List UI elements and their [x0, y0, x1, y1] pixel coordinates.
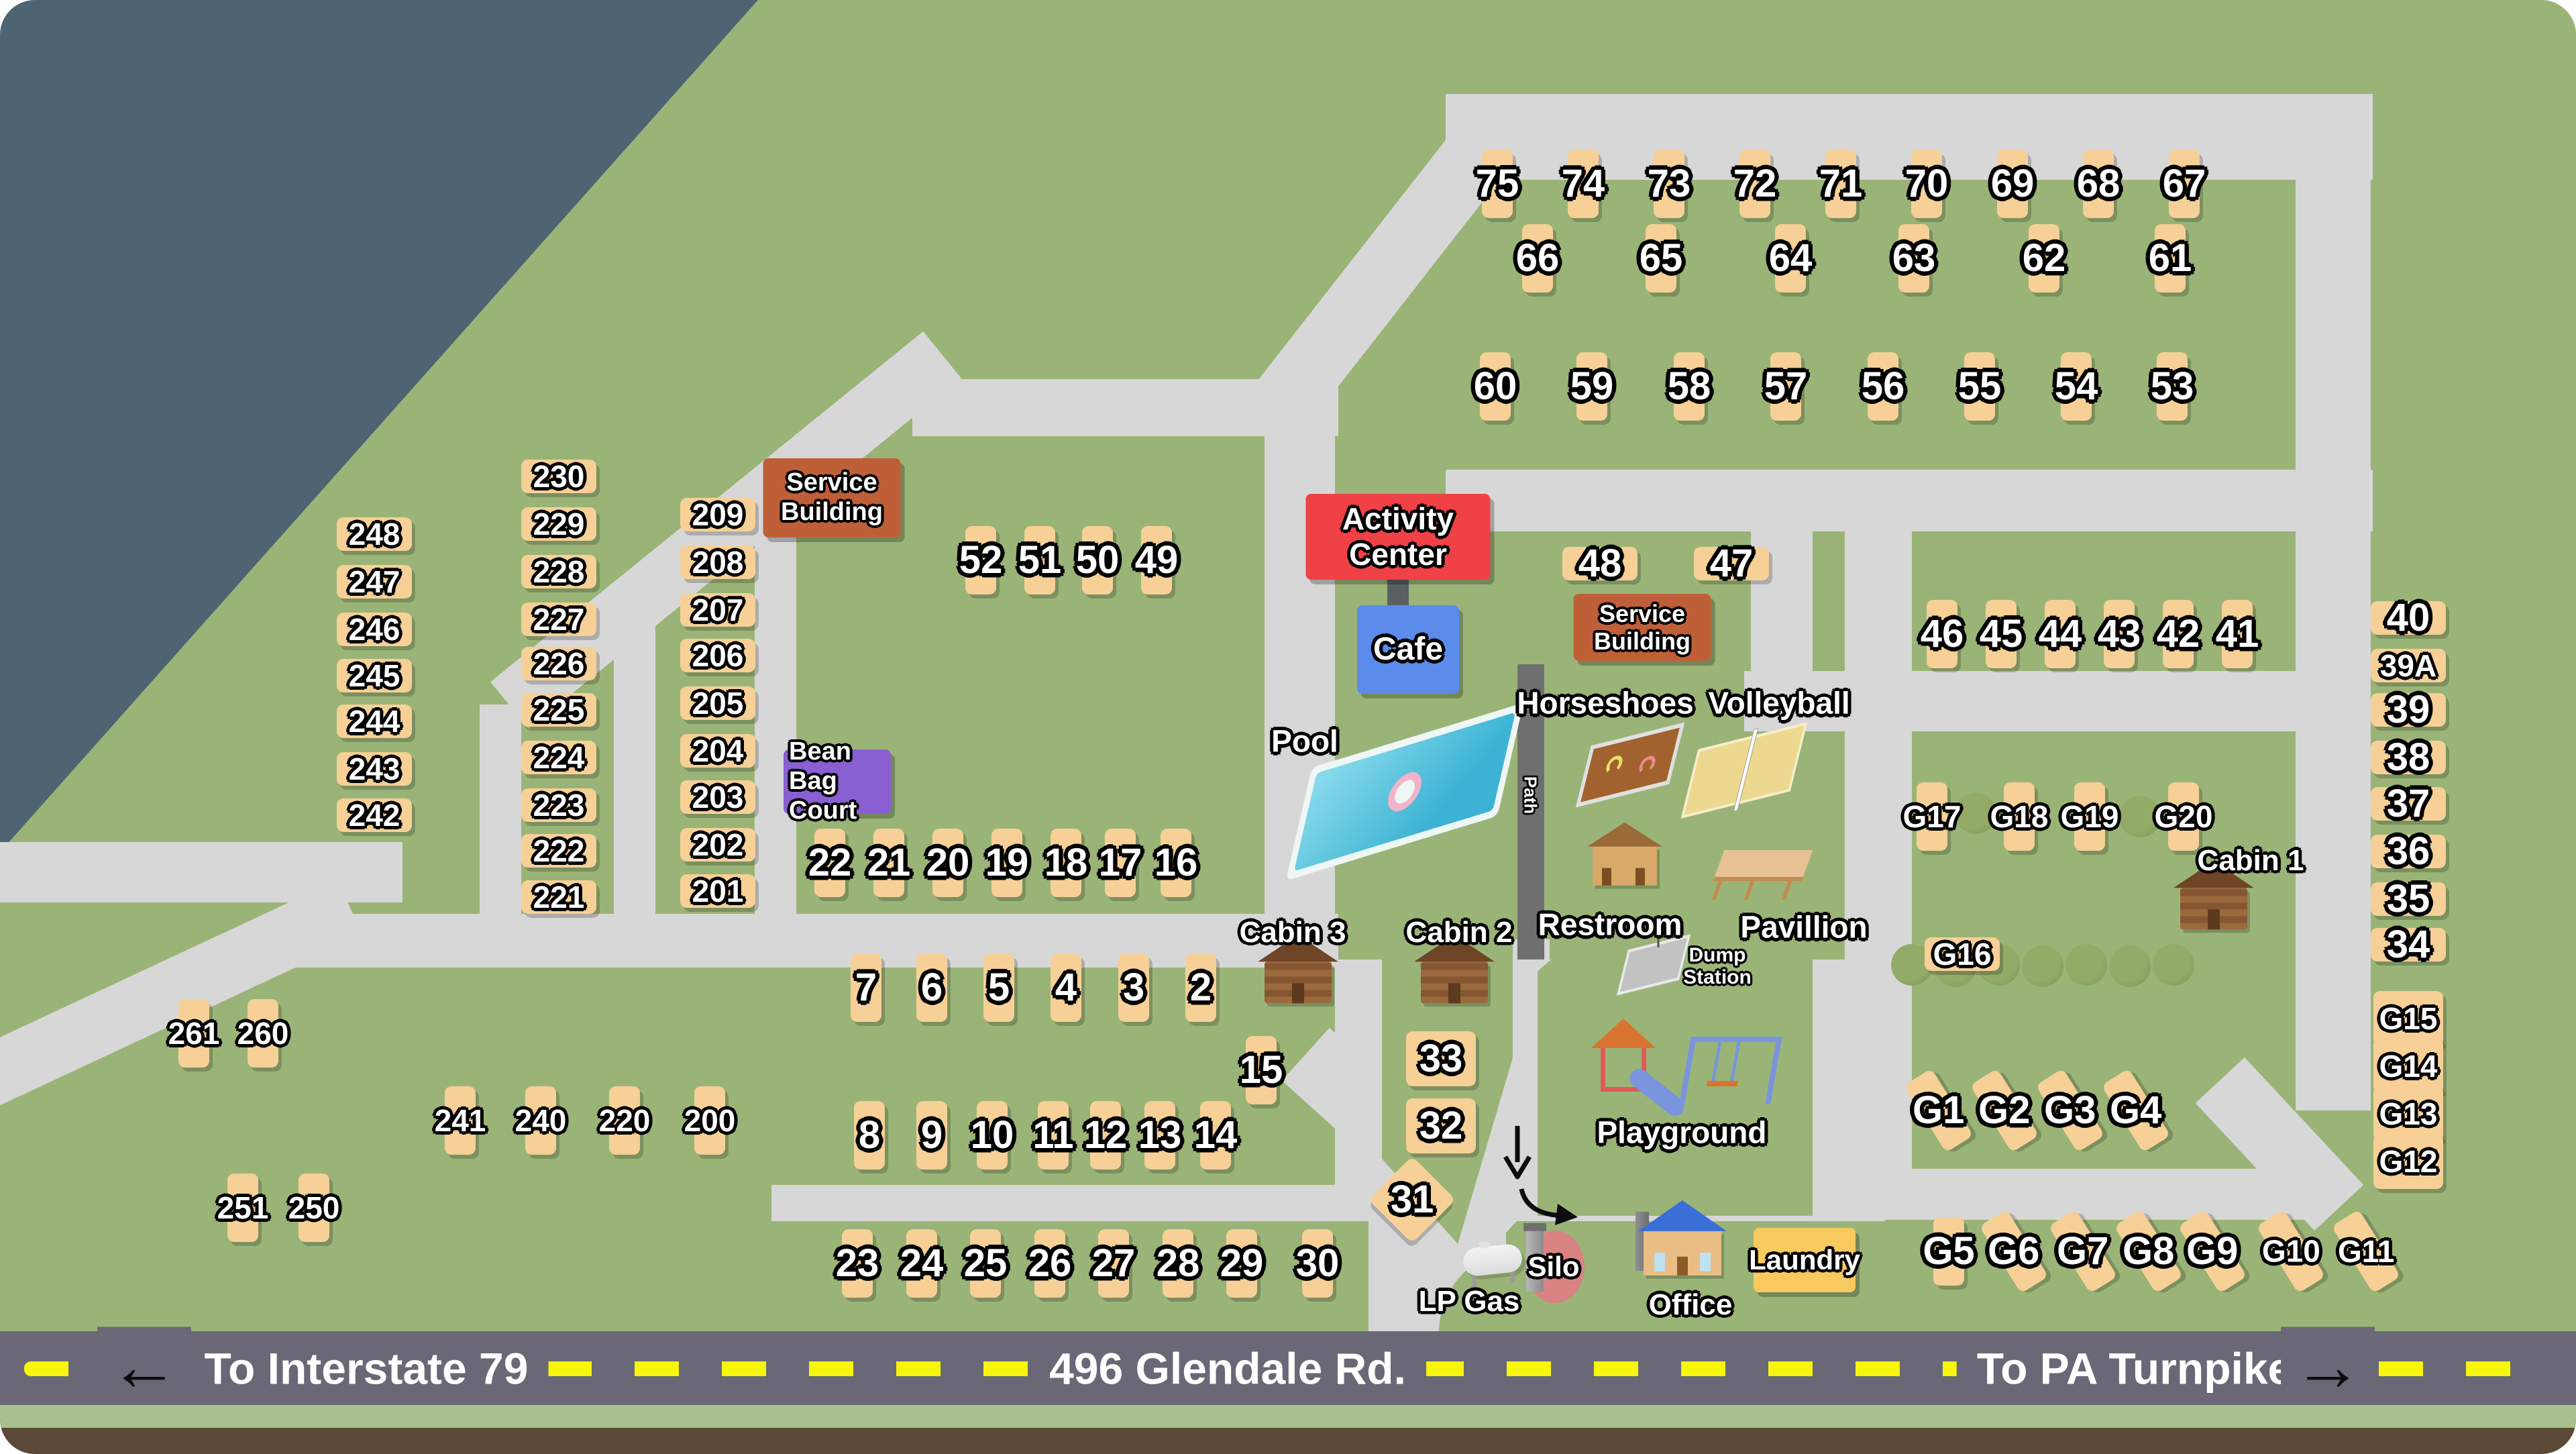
site-60: 60: [1480, 352, 1511, 421]
site-69: 69: [1997, 150, 2028, 218]
dump-station-label: Dump Station: [1664, 944, 1771, 988]
road-right: [2296, 94, 2371, 1110]
site-40: 40: [2371, 601, 2446, 635]
site-39: 39: [2371, 693, 2446, 727]
bean-bag-court: Bean Bag Court: [784, 749, 891, 814]
highway-left-label: To Interstate 79: [184, 1345, 549, 1394]
site-220: 220: [609, 1086, 640, 1155]
highway-right-label: To PA Turnpike: [1957, 1345, 2313, 1394]
site-66: 66: [1522, 224, 1553, 293]
site-50: 50: [1082, 526, 1113, 594]
site-75: 75: [1482, 150, 1513, 218]
site-242: 242: [337, 798, 412, 832]
cabin-3-label: Cabin 3: [1240, 917, 1346, 949]
site-246: 246: [337, 613, 412, 646]
site-G17: G17: [1917, 782, 1947, 851]
west-arrow-icon: ←: [97, 1327, 191, 1407]
site-4: 4: [1051, 953, 1081, 1022]
activity-center: Activity Center: [1306, 494, 1491, 580]
office-icon: [1644, 1231, 1721, 1276]
site-228: 228: [521, 555, 596, 588]
site-67: 67: [2169, 150, 2200, 218]
cabin-2-label: Cabin 2: [1406, 917, 1513, 949]
road-mid-horizontal: [282, 914, 1338, 968]
site-12: 12: [1090, 1101, 1121, 1170]
tree-icon: [2153, 944, 2194, 986]
highway-street-label: 496 Glendale Rd.: [1029, 1345, 1426, 1394]
cabin-1-icon: [2180, 888, 2247, 929]
site-224: 224: [521, 741, 596, 774]
site-250: 250: [299, 1174, 329, 1242]
site-71: 71: [1825, 150, 1856, 218]
site-204: 204: [680, 734, 755, 768]
site-62: 62: [2029, 224, 2059, 293]
site-5: 5: [983, 953, 1014, 1022]
site-3: 3: [1118, 953, 1149, 1022]
cabin-3-icon: [1265, 962, 1332, 1003]
site-68: 68: [2083, 150, 2114, 218]
site-24: 24: [906, 1229, 937, 1298]
site-73: 73: [1654, 150, 1684, 218]
site-29: 29: [1226, 1229, 1257, 1298]
site-36: 36: [2371, 835, 2446, 868]
path-label: Path: [1521, 776, 1540, 814]
site-59: 59: [1576, 352, 1607, 421]
site-30: 30: [1302, 1229, 1333, 1298]
site-G16: G16: [1925, 937, 2000, 971]
site-207: 207: [680, 593, 755, 627]
site-247: 247: [337, 565, 412, 599]
site-251: 251: [227, 1174, 258, 1242]
site-37: 37: [2371, 787, 2446, 821]
site-225: 225: [521, 693, 596, 727]
site-49: 49: [1141, 526, 1172, 594]
laundry: Laundry: [1754, 1228, 1856, 1292]
pavillion-label: Pavillion: [1740, 911, 1867, 945]
site-15: 15: [1246, 1036, 1277, 1104]
site-205: 205: [680, 686, 755, 720]
silo-label: Silo: [1527, 1251, 1579, 1282]
site-51: 51: [1024, 526, 1055, 594]
tree-icon: [2109, 945, 2151, 987]
site-55: 55: [1964, 352, 1995, 421]
site-245: 245: [337, 659, 412, 692]
site-227: 227: [521, 603, 596, 636]
site-52: 52: [965, 526, 996, 594]
site-G18: G18: [2004, 782, 2035, 851]
site-6: 6: [916, 953, 947, 1022]
road-col-2: [614, 607, 655, 951]
site-47: 47: [1694, 547, 1769, 580]
campground-map: 7574737271706968676665646362616059585756…: [0, 0, 2576, 1454]
site-27: 27: [1098, 1229, 1129, 1298]
site-16: 16: [1161, 829, 1191, 897]
site-19: 19: [991, 829, 1022, 897]
site-20: 20: [932, 829, 963, 897]
site-72: 72: [1739, 150, 1770, 218]
site-35: 35: [2371, 882, 2446, 916]
tree-icon: [2022, 945, 2063, 987]
site-226: 226: [521, 647, 596, 680]
horseshoes-label: Horseshoes: [1517, 686, 1693, 721]
site-39A: 39A: [2371, 649, 2446, 682]
site-74: 74: [1568, 150, 1599, 218]
site-21: 21: [873, 829, 904, 897]
site-45: 45: [1986, 600, 2017, 668]
glendale-road: ← To Interstate 79 496 Glendale Rd. To P…: [0, 1331, 2576, 1406]
playground-slide-roof-icon: [1591, 1019, 1656, 1048]
site-54: 54: [2061, 352, 2092, 421]
site-10: 10: [977, 1101, 1008, 1170]
roadside-green-strip: [0, 1405, 2576, 1429]
site-200: 200: [694, 1086, 725, 1155]
site-61: 61: [2155, 224, 2186, 293]
site-46: 46: [1927, 600, 1957, 668]
site-G14: G14: [2373, 1039, 2443, 1094]
site-64: 64: [1775, 224, 1806, 293]
restroom-label: Restroom: [1538, 908, 1682, 942]
site-57: 57: [1770, 352, 1801, 421]
site-260: 260: [248, 999, 278, 1068]
site-22: 22: [814, 829, 845, 897]
site-56: 56: [1868, 352, 1898, 421]
site-208: 208: [680, 546, 755, 579]
tree-icon: [2065, 944, 2107, 986]
site-44: 44: [2045, 600, 2076, 668]
pavillion-icon: [1713, 850, 1813, 881]
site-203: 203: [680, 780, 755, 814]
site-G20: G20: [2168, 782, 2199, 851]
site-202: 202: [680, 828, 755, 862]
site-18: 18: [1051, 829, 1081, 897]
playground-swing-icon: [1679, 1037, 1782, 1104]
east-arrow-icon: →: [2281, 1327, 2375, 1407]
office-label: Office: [1649, 1289, 1733, 1321]
road-lower-horizontal: [771, 1185, 1362, 1221]
site-9: 9: [916, 1101, 947, 1170]
site-206: 206: [680, 639, 755, 672]
pool-label: Pool: [1271, 725, 1338, 759]
road-mid-upper: [1446, 470, 2373, 531]
site-221: 221: [521, 880, 596, 914]
site-G12: G12: [2373, 1134, 2443, 1189]
site-243: 243: [337, 752, 412, 786]
site-58: 58: [1674, 352, 1705, 421]
one-way-down-arrow-icon: [1499, 1123, 1536, 1182]
site-28: 28: [1163, 1229, 1193, 1298]
site-25: 25: [970, 1229, 1001, 1298]
site-201: 201: [680, 874, 755, 908]
site-248: 248: [337, 517, 412, 551]
site-43: 43: [2104, 600, 2135, 668]
site-41: 41: [2222, 600, 2253, 668]
site-G19: G19: [2074, 782, 2105, 851]
site-230: 230: [521, 460, 596, 493]
playground-label: Playground: [1597, 1116, 1766, 1150]
site-34: 34: [2371, 928, 2446, 962]
site-261: 261: [178, 999, 209, 1068]
site-G13: G13: [2373, 1086, 2443, 1141]
site-33: 33: [1406, 1031, 1476, 1086]
site-32: 32: [1406, 1098, 1476, 1153]
site-244: 244: [337, 705, 412, 738]
site-14: 14: [1200, 1101, 1231, 1170]
lp-gas-label: LP Gas: [1419, 1286, 1520, 1318]
cafe: Cafe: [1357, 605, 1459, 694]
site-26: 26: [1034, 1229, 1065, 1298]
site-7: 7: [851, 953, 881, 1022]
site-229: 229: [521, 507, 596, 541]
service-building-2: Service Building: [1574, 594, 1711, 661]
restroom-icon: [1593, 847, 1657, 886]
site-11: 11: [1038, 1101, 1069, 1170]
site-17: 17: [1105, 829, 1136, 897]
site-53: 53: [2157, 352, 2188, 421]
site-38: 38: [2371, 741, 2446, 774]
site-222: 222: [521, 834, 596, 868]
site-13: 13: [1144, 1101, 1175, 1170]
site-23: 23: [842, 1229, 873, 1298]
site-G5: G5: [1933, 1217, 1964, 1286]
site-63: 63: [1898, 224, 1929, 293]
site-241: 241: [445, 1086, 476, 1155]
cabin-2-icon: [1421, 962, 1488, 1003]
site-42: 42: [2163, 600, 2194, 668]
site-70: 70: [1911, 150, 1942, 218]
site-223: 223: [521, 788, 596, 822]
site-G15: G15: [2373, 991, 2443, 1046]
volleyball-label: Volleyball: [1708, 686, 1849, 721]
site-65: 65: [1646, 224, 1676, 293]
roadside-brown-strip: [0, 1428, 2576, 1454]
site-209: 209: [680, 498, 755, 531]
cabin-1-label: Cabin 1: [2198, 845, 2304, 877]
road-col-3: [755, 500, 796, 951]
site-8: 8: [854, 1101, 885, 1170]
site-48: 48: [1562, 547, 1638, 580]
service-building-1: Service Building: [763, 458, 901, 537]
site-240: 240: [525, 1086, 556, 1155]
one-way-curve-arrow-icon: [1516, 1184, 1583, 1227]
site-2: 2: [1185, 953, 1216, 1022]
